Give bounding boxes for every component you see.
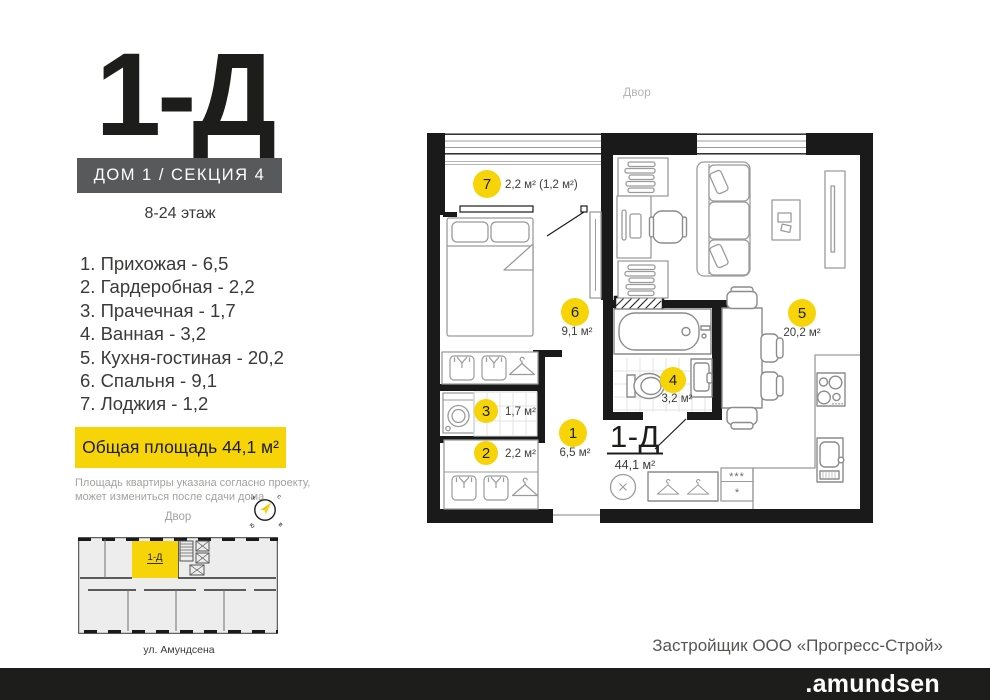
entry-symbol xyxy=(611,475,636,500)
plan-unit-area: 44,1 м² xyxy=(615,458,656,472)
room-label-3: 3 1,7 м² xyxy=(474,399,536,423)
room-4-area: 3,2 м² xyxy=(662,393,693,405)
mirror-wardrobe xyxy=(590,212,601,298)
stove xyxy=(817,373,845,406)
fridge: *** * xyxy=(721,468,753,501)
compass-south: ю xyxy=(248,522,256,531)
compass-icon: з с в ю xyxy=(244,489,286,531)
yard-label: Двор xyxy=(152,511,204,523)
room-4-number: 4 xyxy=(669,372,677,389)
fridge-symbol-bottom: * xyxy=(735,487,740,499)
dining-set xyxy=(722,287,783,429)
room-list-item: 2. Гардеробная - 2,2 xyxy=(80,275,284,298)
bookshelf-top xyxy=(618,158,668,196)
balcony-door-leaf xyxy=(547,212,584,236)
room-label-7: 7 2,2 м² (1,2 м²) xyxy=(473,170,578,198)
toilet xyxy=(627,374,664,399)
mini-plan-stairs xyxy=(180,541,193,561)
compass-north: с xyxy=(275,493,283,501)
house-section-badge: ДОМ 1 / СЕКЦИЯ 4 xyxy=(77,158,282,193)
compass-east: в xyxy=(277,521,285,529)
room-1-number: 1 xyxy=(569,425,577,442)
floor-plan: Двор xyxy=(410,78,880,548)
fridge-symbol-top: *** xyxy=(729,471,745,483)
building-mini-plan: 1-Д xyxy=(78,537,278,634)
room-3-area: 1,7 м² xyxy=(505,406,536,418)
room-2-area: 2,2 м² xyxy=(505,448,536,460)
mini-plan-unit-label: 1-Д xyxy=(148,552,163,563)
desk xyxy=(617,196,651,258)
room-7-area: 2,2 м² (1,2 м²) xyxy=(505,179,578,191)
room-7-number: 7 xyxy=(483,176,491,193)
bedroom-closet xyxy=(442,352,538,384)
room-6-area: 9,1 м² xyxy=(562,326,593,338)
room-list-item: 5. Кухня-гостиная - 20,2 xyxy=(80,346,284,369)
bathtub xyxy=(614,309,711,354)
window-band-balcony xyxy=(443,134,601,164)
total-area-badge: Общая площадь 44,1 м² xyxy=(75,427,286,468)
balcony-window xyxy=(460,206,533,212)
coffee-table xyxy=(772,200,800,240)
poster-page: 1-Д ДОМ 1 / СЕКЦИЯ 4 8-24 этаж 1. Прихож… xyxy=(0,0,990,700)
kitchen-sink xyxy=(817,438,844,482)
room-6-number: 6 xyxy=(571,304,579,321)
house-section-label: ДОМ 1 / СЕКЦИЯ 4 xyxy=(94,166,266,185)
room-3-number: 3 xyxy=(482,403,490,420)
developer-label: Застройщик ООО «Прогресс-Строй» xyxy=(652,636,943,656)
bookshelf-bottom xyxy=(618,261,668,298)
room-list-item: 1. Прихожая - 6,5 xyxy=(80,252,284,275)
sofa xyxy=(697,162,750,276)
room-list: 1. Прихожая - 6,5 2. Гардеробная - 2,2 3… xyxy=(80,252,284,416)
room-2-number: 2 xyxy=(482,445,490,462)
desk-chair xyxy=(650,211,687,243)
room-list-item: 4. Ванная - 3,2 xyxy=(80,322,284,345)
plan-unit-title: 1-Д 44,1 м² xyxy=(607,419,663,472)
plan-unit-name: 1-Д xyxy=(610,419,660,454)
tv-unit xyxy=(825,171,845,268)
room-list-item: 6. Спальня - 9,1 xyxy=(80,369,284,392)
room-list-item: 3. Прачечная - 1,7 xyxy=(80,299,284,322)
room-label-5: 5 20,2 м² xyxy=(783,299,820,339)
disclaimer-line-1: Площадь квартиры указана согласно проект… xyxy=(75,476,315,490)
compass-west: з xyxy=(250,494,257,501)
bathroom-sink xyxy=(691,359,712,397)
washing-machine xyxy=(443,393,474,433)
room-label-4: 4 3,2 м² xyxy=(660,367,693,405)
room-label-6: 6 9,1 м² xyxy=(561,298,593,338)
window-band-living xyxy=(697,134,806,154)
street-label: ул. Амундсена xyxy=(98,644,260,656)
room-label-1: 1 6,5 м² xyxy=(559,419,591,459)
brand-bar: .amundsen xyxy=(0,668,990,700)
room-list-item: 7. Лоджия - 1,2 xyxy=(80,392,284,415)
plan-yard-label: Двор xyxy=(623,85,651,99)
room-1-area: 6,5 м² xyxy=(560,447,591,459)
hanger-rack xyxy=(648,472,718,501)
room-5-area: 20,2 м² xyxy=(783,327,820,339)
bed xyxy=(447,218,533,336)
balcony-door-hinge xyxy=(581,206,587,212)
apartment-logo: 1-Д xyxy=(0,36,368,154)
mini-plan-highlighted-unit: 1-Д xyxy=(132,541,178,578)
room-5-number: 5 xyxy=(798,305,806,322)
floors-label: 8-24 этаж xyxy=(0,205,360,223)
total-area-label: Общая площадь 44,1 м² xyxy=(82,437,279,458)
brand-logo: .amundsen xyxy=(805,670,940,699)
